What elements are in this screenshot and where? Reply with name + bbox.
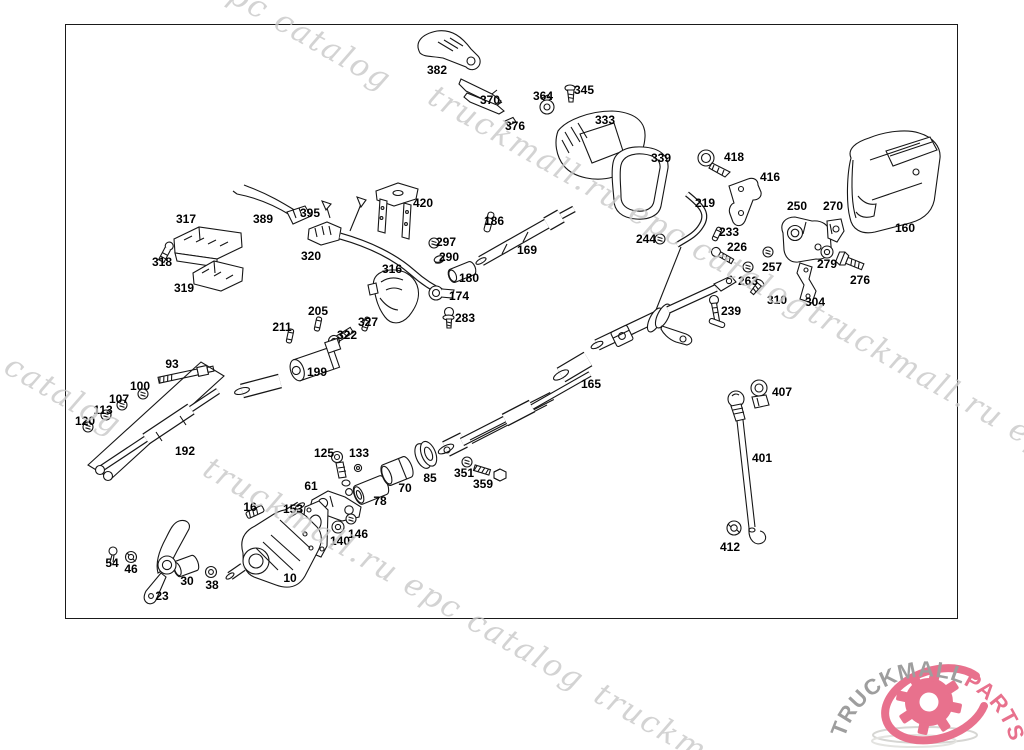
part-label-364[interactable]: 364	[533, 89, 553, 103]
part-label-416[interactable]: 416	[760, 170, 780, 184]
truckmall-logo: TRUCKMALLPARTS	[830, 644, 1024, 750]
part-label-233[interactable]: 233	[719, 225, 739, 239]
part-label-10[interactable]: 10	[283, 571, 296, 585]
part-label-382[interactable]: 382	[427, 63, 447, 77]
part-label-263[interactable]: 263	[738, 274, 758, 288]
part-label-226[interactable]: 226	[727, 240, 747, 254]
part-label-133[interactable]: 133	[349, 446, 369, 460]
part-label-420[interactable]: 420	[413, 196, 433, 210]
part-label-310[interactable]: 310	[767, 293, 787, 307]
part-label-359[interactable]: 359	[473, 477, 493, 491]
part-label-322[interactable]: 322	[337, 328, 357, 342]
part-label-174[interactable]: 174	[449, 289, 469, 303]
part-label-38[interactable]: 38	[205, 578, 218, 592]
part-label-333[interactable]: 333	[595, 113, 615, 127]
part-label-412[interactable]: 412	[720, 540, 740, 554]
part-label-327[interactable]: 327	[358, 315, 378, 329]
part-label-199[interactable]: 199	[307, 365, 327, 379]
part-label-407[interactable]: 407	[772, 385, 792, 399]
part-label-279[interactable]: 279	[817, 257, 837, 271]
part-label-46[interactable]: 46	[124, 562, 137, 576]
part-label-180[interactable]: 180	[459, 271, 479, 285]
part-label-257[interactable]: 257	[762, 260, 782, 274]
part-label-78[interactable]: 78	[373, 494, 386, 508]
logo-text-parts: PARTS	[961, 667, 1024, 745]
part-label-270[interactable]: 270	[823, 199, 843, 213]
part-label-165[interactable]: 165	[581, 377, 601, 391]
part-label-205[interactable]: 205	[308, 304, 328, 318]
part-label-317[interactable]: 317	[176, 212, 196, 226]
part-label-351[interactable]: 351	[454, 466, 474, 480]
part-label-345[interactable]: 345	[574, 83, 594, 97]
part-label-113[interactable]: 113	[93, 403, 112, 417]
part-label-16[interactable]: 16	[243, 500, 256, 514]
part-label-125[interactable]: 125	[314, 446, 334, 460]
part-label-320[interactable]: 320	[301, 249, 321, 263]
part-label-93[interactable]: 93	[165, 357, 178, 371]
part-label-418[interactable]: 418	[724, 150, 744, 164]
part-label-395[interactable]: 395	[300, 206, 320, 220]
part-label-290[interactable]: 290	[439, 250, 459, 264]
part-label-100[interactable]: 100	[130, 379, 150, 393]
part-label-30[interactable]: 30	[180, 574, 193, 588]
part-label-219[interactable]: 219	[695, 196, 715, 210]
part-label-186[interactable]: 186	[484, 214, 504, 228]
part-label-169[interactable]: 169	[517, 243, 537, 257]
part-label-401[interactable]: 401	[752, 451, 772, 465]
part-label-61[interactable]: 61	[304, 479, 317, 493]
part-label-153[interactable]: 153	[283, 502, 303, 516]
part-labels-layer: 3823703763643453333394184162192442332262…	[0, 0, 1024, 750]
part-label-192[interactable]: 192	[175, 444, 195, 458]
part-label-160[interactable]: 160	[895, 221, 915, 235]
part-label-376[interactable]: 376	[505, 119, 525, 133]
part-label-239[interactable]: 239	[721, 304, 741, 318]
part-label-54[interactable]: 54	[105, 556, 118, 570]
part-label-304[interactable]: 304	[805, 295, 825, 309]
part-label-146[interactable]: 146	[348, 527, 368, 541]
part-label-370[interactable]: 370	[480, 93, 500, 107]
part-label-318[interactable]: 318	[152, 255, 172, 269]
part-label-276[interactable]: 276	[850, 273, 870, 287]
part-label-250[interactable]: 250	[787, 199, 807, 213]
part-label-244[interactable]: 244	[636, 232, 656, 246]
part-label-319[interactable]: 319	[174, 281, 194, 295]
catalog-diagram-page: 3823703763643453333394184162192442332262…	[0, 0, 1024, 750]
part-label-120[interactable]: 120	[75, 414, 95, 428]
part-label-389[interactable]: 389	[253, 212, 273, 226]
part-label-339[interactable]: 339	[651, 151, 671, 165]
part-label-316[interactable]: 316	[382, 262, 402, 276]
part-label-85[interactable]: 85	[423, 471, 436, 485]
part-label-283[interactable]: 283	[455, 311, 475, 325]
part-label-70[interactable]: 70	[398, 481, 411, 495]
part-label-23[interactable]: 23	[155, 589, 168, 603]
part-label-211[interactable]: 211	[272, 320, 291, 334]
part-label-297[interactable]: 297	[436, 235, 456, 249]
